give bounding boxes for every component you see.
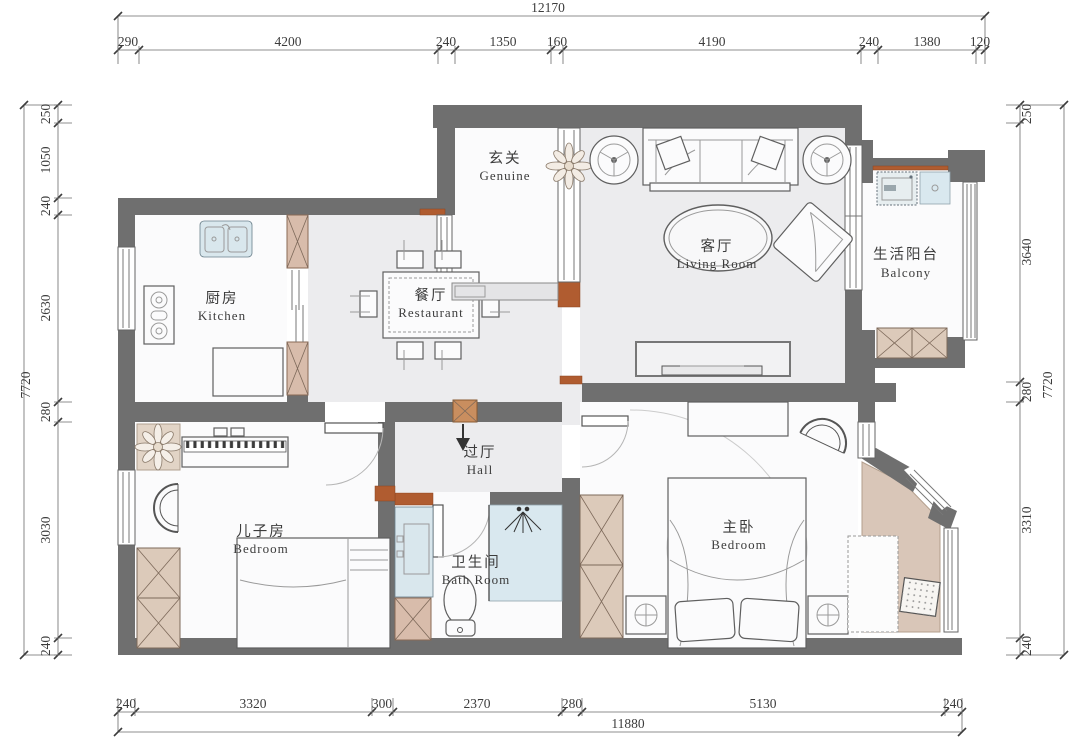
- dim-left-inner: [54, 101, 72, 659]
- dim-right-1: 3640: [1019, 238, 1034, 265]
- kid-label-zh: 儿子房: [236, 523, 286, 540]
- master-dresser: [848, 536, 898, 632]
- dim-top-1: 4200: [275, 34, 302, 49]
- dim-bottom-4: 280: [562, 696, 583, 711]
- bath-vanity: [395, 507, 433, 597]
- tv: [662, 366, 762, 375]
- kid-window: [118, 470, 135, 545]
- ceiling-speaker-right: [803, 136, 851, 184]
- dim-left-total: 7720: [18, 371, 33, 398]
- mid-wall-left-c: [477, 402, 562, 422]
- washing-machine: [877, 172, 917, 205]
- living-label-zh: 客厅: [701, 238, 734, 255]
- accent-balcony: [873, 166, 948, 170]
- mid-wall-right: [582, 383, 896, 402]
- dim-bottom-total: 11880: [611, 716, 644, 731]
- kitchen-top-wall: [118, 198, 445, 215]
- dim-bottom-1: 3320: [240, 696, 267, 711]
- bath-top-wall: [490, 492, 562, 505]
- bay-vertical-window: [944, 528, 958, 632]
- balcony-fixtures: [877, 172, 950, 205]
- dining-chair: [397, 251, 423, 268]
- master-wardrobe-a: [580, 495, 623, 565]
- nightstand-right: [808, 596, 848, 634]
- kitchen-label-zh: 厨房: [206, 290, 239, 307]
- balcony-sink: [920, 172, 950, 204]
- mid-wall-left-b: [385, 402, 453, 422]
- dim-top-3: 1350: [490, 34, 517, 49]
- dining-chair: [397, 342, 423, 359]
- accent-kitchen-corner: [420, 209, 445, 215]
- entry-left-wall: [437, 105, 455, 215]
- bay-pillow: [900, 578, 940, 617]
- dim-left-0: 250: [38, 104, 53, 125]
- balcony-top-strip: [873, 158, 948, 166]
- dining-chair: [360, 291, 377, 317]
- dining-label-zh: 餐厅: [415, 287, 448, 304]
- dim-right-0: 250: [1019, 104, 1034, 125]
- dim-left-1: 1050: [38, 146, 53, 173]
- accent-passage: [560, 376, 582, 384]
- kid-wardrobe-a: [137, 548, 180, 598]
- master-label-zh: 主卧: [723, 519, 756, 536]
- kid-label-en: Bedroom: [233, 541, 288, 556]
- dim-top-total: 12170: [531, 0, 565, 15]
- tv-unit: [636, 342, 790, 376]
- hall-label-en: Hall: [467, 462, 493, 477]
- dim-right-3: 3310: [1019, 506, 1034, 533]
- hall-pier: [453, 400, 477, 422]
- dim-top-6: 240: [859, 34, 880, 49]
- passage-floor: [560, 383, 582, 425]
- dim-top-7: 1380: [914, 34, 941, 49]
- dim-bottom-2: 300: [372, 696, 393, 711]
- kitchen-stove: [144, 286, 174, 344]
- living-label-en: Living Room: [677, 256, 758, 271]
- dim-left-3: 2630: [38, 294, 53, 321]
- dim-bottom-5: 5130: [750, 696, 777, 711]
- dim-left-6: 240: [38, 636, 53, 657]
- kitchen-label-en: Kitchen: [198, 308, 246, 323]
- hall-right-wall: [562, 478, 580, 638]
- kid-wardrobe-b: [137, 598, 180, 648]
- hall-label-zh: 过厅: [464, 444, 497, 461]
- kitchen-door-pier-top: [287, 215, 308, 268]
- master-right-stub: [858, 402, 875, 422]
- balcony-right-window: [963, 182, 977, 340]
- accent-bath-corner: [375, 486, 395, 501]
- dim-bottom-3: 2370: [464, 696, 491, 711]
- floor-plan-drawing: 玄关 Genuine 厨房 Kitchen 餐厅 Restaurant 客厅 L…: [0, 0, 1080, 753]
- master-wardrobe-b: [580, 565, 623, 638]
- master-right-window: [858, 422, 875, 458]
- left-wall-a: [118, 215, 135, 247]
- dim-bottom-outer: [114, 712, 966, 736]
- dim-right-4: 240: [1019, 636, 1034, 657]
- dim-right-total: 7720: [1040, 371, 1055, 398]
- kitchen-sink: [200, 221, 252, 257]
- balcony-cabinet-b: [912, 328, 947, 358]
- bath-label-en: Bath Room: [442, 572, 511, 587]
- dim-top-0: 290: [118, 34, 139, 49]
- dim-bottom-6: 240: [943, 696, 964, 711]
- sofa: [643, 128, 798, 191]
- kitchen-sliding-door: [292, 270, 303, 342]
- dining-label-en: Restaurant: [398, 305, 464, 320]
- top-wall: [433, 105, 862, 128]
- kitchen-window: [118, 247, 135, 330]
- dim-bottom-0: 240: [116, 696, 137, 711]
- nightstand-left: [626, 596, 666, 634]
- dim-top-5: 4190: [699, 34, 726, 49]
- master-bed: [668, 478, 806, 648]
- master-desk: [688, 402, 788, 436]
- dim-left-5: 3030: [38, 516, 53, 543]
- left-wall-b: [118, 330, 135, 470]
- dining-chair: [435, 251, 461, 268]
- balcony-label-zh: 生活阳台: [873, 246, 939, 263]
- entry-label-en: Genuine: [479, 168, 530, 183]
- entry-label-zh: 玄关: [489, 150, 522, 167]
- kitchen-cabinet: [213, 348, 283, 396]
- mid-wall-left-a: [118, 402, 325, 422]
- bath-cabinet: [395, 598, 431, 640]
- dim-right-2: 280: [1019, 382, 1034, 403]
- balcony-top-right-block: [948, 150, 985, 182]
- bath-label-zh: 卫生间: [451, 554, 501, 571]
- balcony-label-en: Balcony: [881, 265, 931, 280]
- kitchen-door-pier-bottom: [287, 342, 308, 395]
- balcony-bottom-strip: [862, 358, 965, 368]
- dim-left-4: 280: [38, 402, 53, 423]
- dining-chair: [435, 342, 461, 359]
- dim-top-8: 120: [970, 34, 991, 49]
- ceiling-speaker-left: [590, 136, 638, 184]
- kid-ceiling-fan: [135, 424, 181, 470]
- master-label-en: Bedroom: [711, 537, 766, 552]
- floor-plan-page: 玄关 Genuine 厨房 Kitchen 餐厅 Restaurant 客厅 L…: [0, 0, 1080, 753]
- accent-bath-strip: [395, 493, 433, 505]
- dim-left-2: 240: [38, 196, 53, 217]
- dim-top-4: 160: [547, 34, 568, 49]
- accent-screen-bottom: [558, 282, 580, 307]
- balcony-cabinet-a: [877, 328, 912, 358]
- dim-right-inner: [1006, 101, 1024, 659]
- dim-top-2: 240: [436, 34, 457, 49]
